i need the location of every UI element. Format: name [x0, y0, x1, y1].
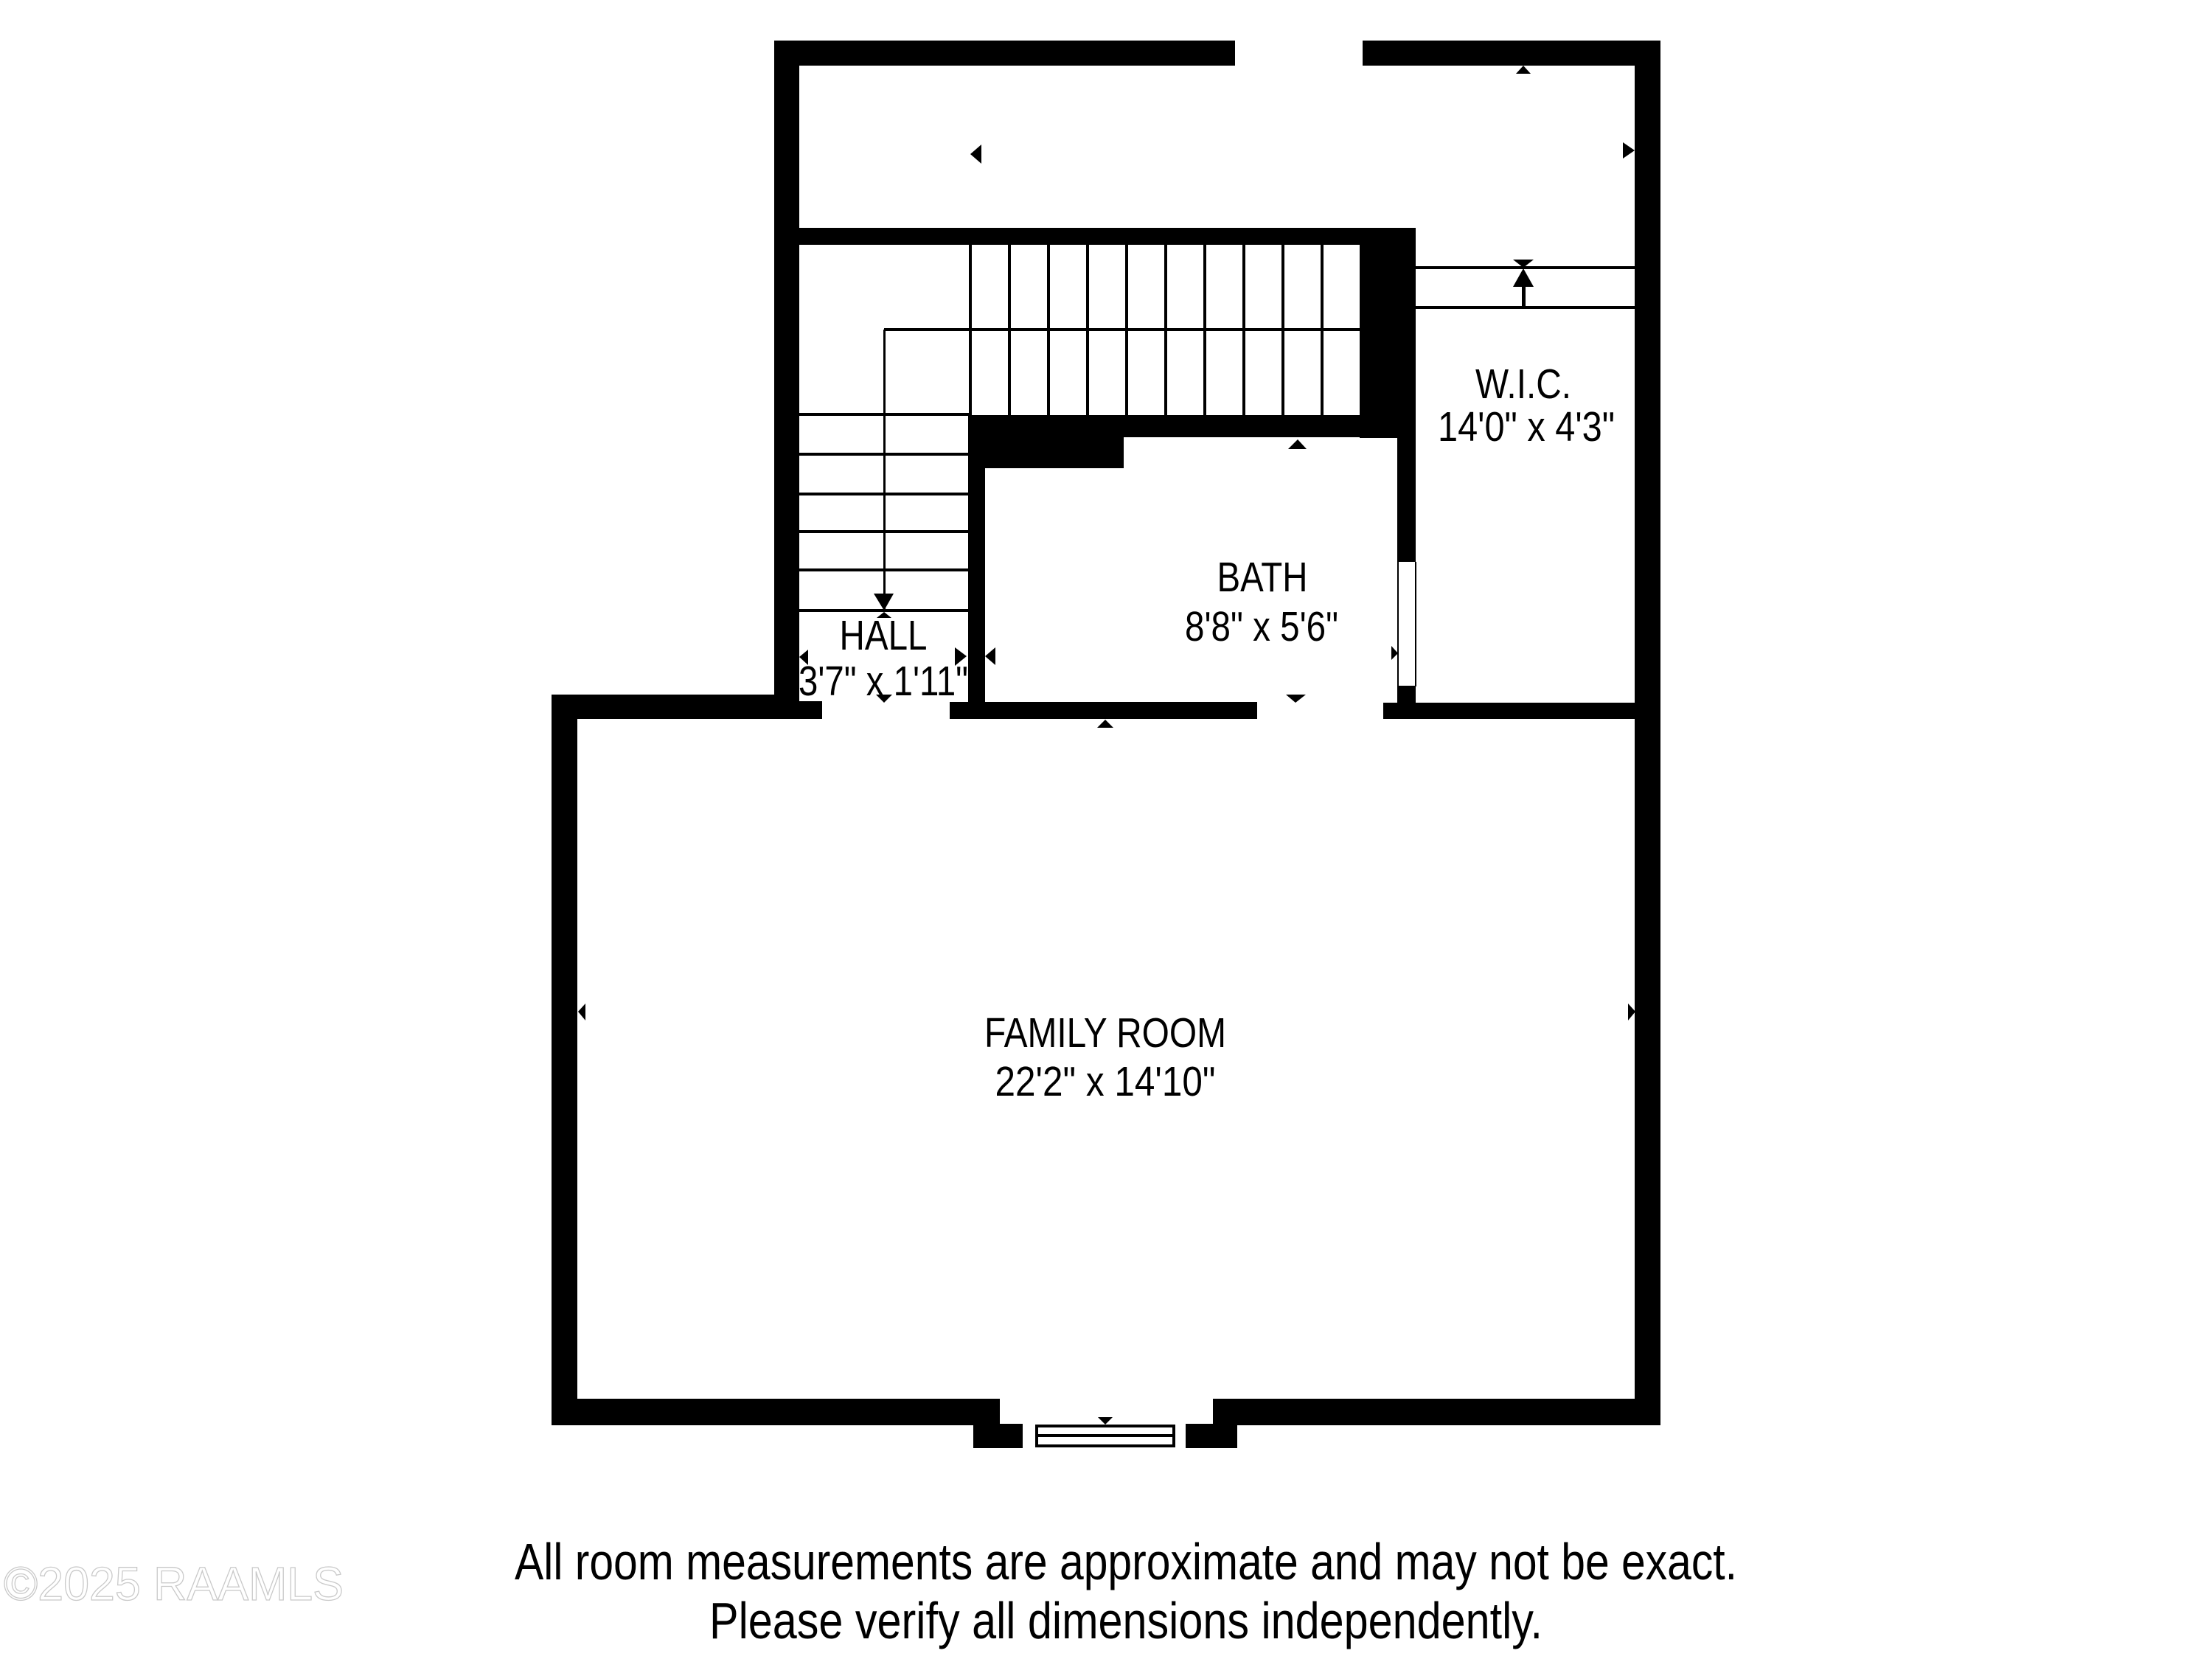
svg-text:BATH: BATH [1217, 554, 1308, 601]
svg-text:3'7" x 1'11": 3'7" x 1'11" [799, 658, 968, 705]
svg-text:W.I.C.: W.I.C. [1475, 361, 1571, 408]
svg-text:Please verify all dimensions i: Please verify all dimensions independent… [709, 1592, 1543, 1649]
svg-text:HALL: HALL [840, 612, 928, 659]
svg-text:All room measurements are appr: All room measurements are approximate an… [515, 1533, 1737, 1590]
svg-text:22'2" x 14'10": 22'2" x 14'10" [995, 1058, 1216, 1105]
svg-text:©2025 RAAMLS: ©2025 RAAMLS [4, 1557, 344, 1610]
svg-text:FAMILY ROOM: FAMILY ROOM [984, 1009, 1226, 1057]
svg-text:8'8" x 5'6": 8'8" x 5'6" [1185, 603, 1338, 650]
svg-text:14'0" x 4'3": 14'0" x 4'3" [1438, 403, 1615, 451]
